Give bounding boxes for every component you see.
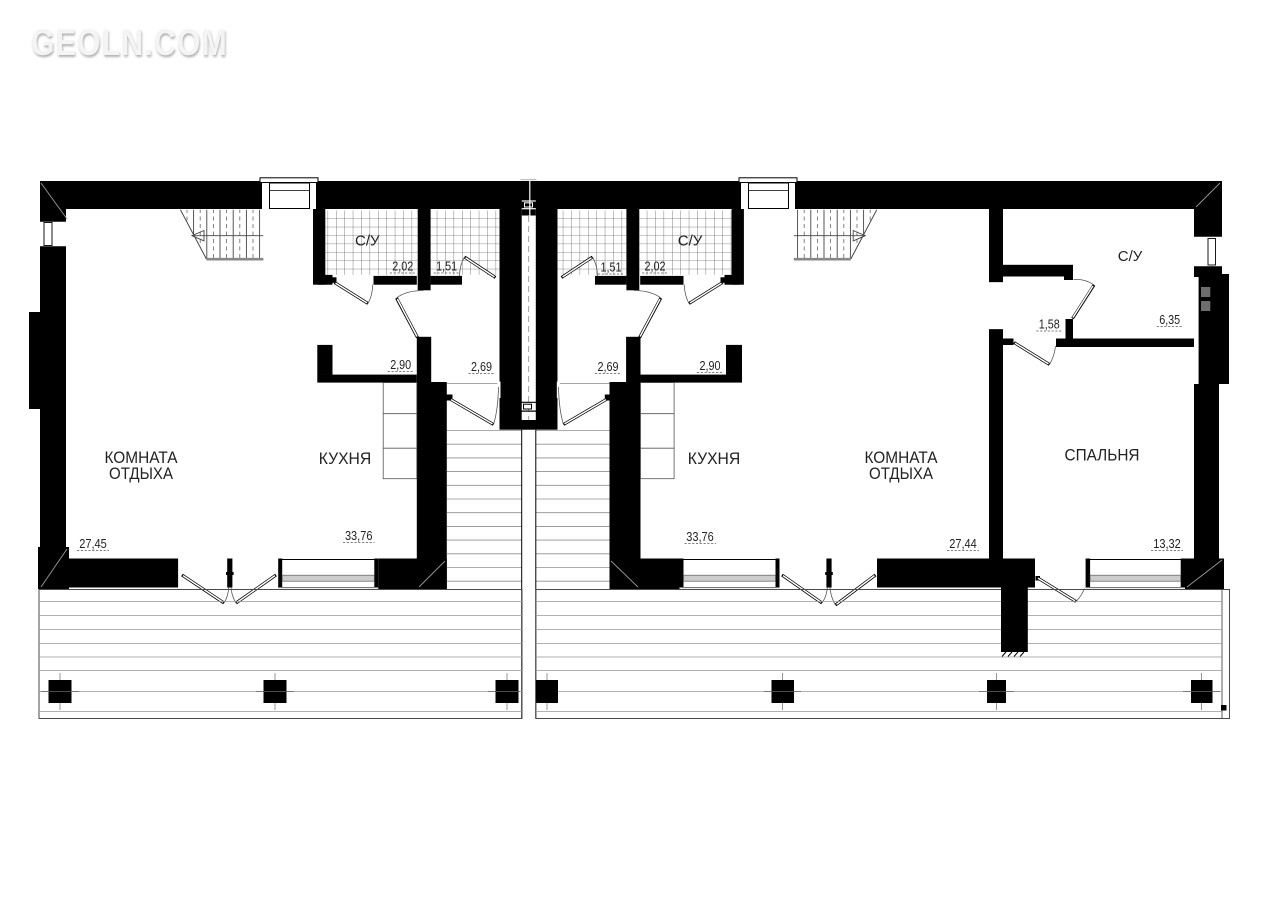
svg-text:ОТДЫХА: ОТДЫХА xyxy=(869,465,933,483)
svg-text:27,45: 27,45 xyxy=(79,536,107,551)
svg-text:33,76: 33,76 xyxy=(345,528,373,543)
svg-text:2,90: 2,90 xyxy=(700,358,721,373)
svg-text:ОТДЫХА: ОТДЫХА xyxy=(109,465,173,483)
svg-text:2,90: 2,90 xyxy=(390,357,411,372)
svg-text:13,32: 13,32 xyxy=(1153,536,1181,551)
svg-text:2,02: 2,02 xyxy=(392,259,413,274)
svg-text:1,58: 1,58 xyxy=(1039,317,1060,332)
svg-text:2,02: 2,02 xyxy=(645,259,666,274)
svg-text:2,69: 2,69 xyxy=(598,359,619,374)
svg-text:2,69: 2,69 xyxy=(471,359,492,374)
svg-text:С/У: С/У xyxy=(1118,248,1143,265)
svg-text:СПАЛЬНЯ: СПАЛЬНЯ xyxy=(1065,447,1140,465)
svg-text:33,76: 33,76 xyxy=(686,529,714,544)
svg-text:1,51: 1,51 xyxy=(436,259,457,274)
svg-text:27,44: 27,44 xyxy=(949,536,977,551)
svg-text:КУХНЯ: КУХНЯ xyxy=(319,450,372,468)
svg-text:С/У: С/У xyxy=(355,233,380,250)
svg-text:1,51: 1,51 xyxy=(601,260,622,275)
svg-text:С/У: С/У xyxy=(678,233,703,250)
svg-text:6,35: 6,35 xyxy=(1159,312,1180,327)
svg-text:КУХНЯ: КУХНЯ xyxy=(688,450,741,468)
